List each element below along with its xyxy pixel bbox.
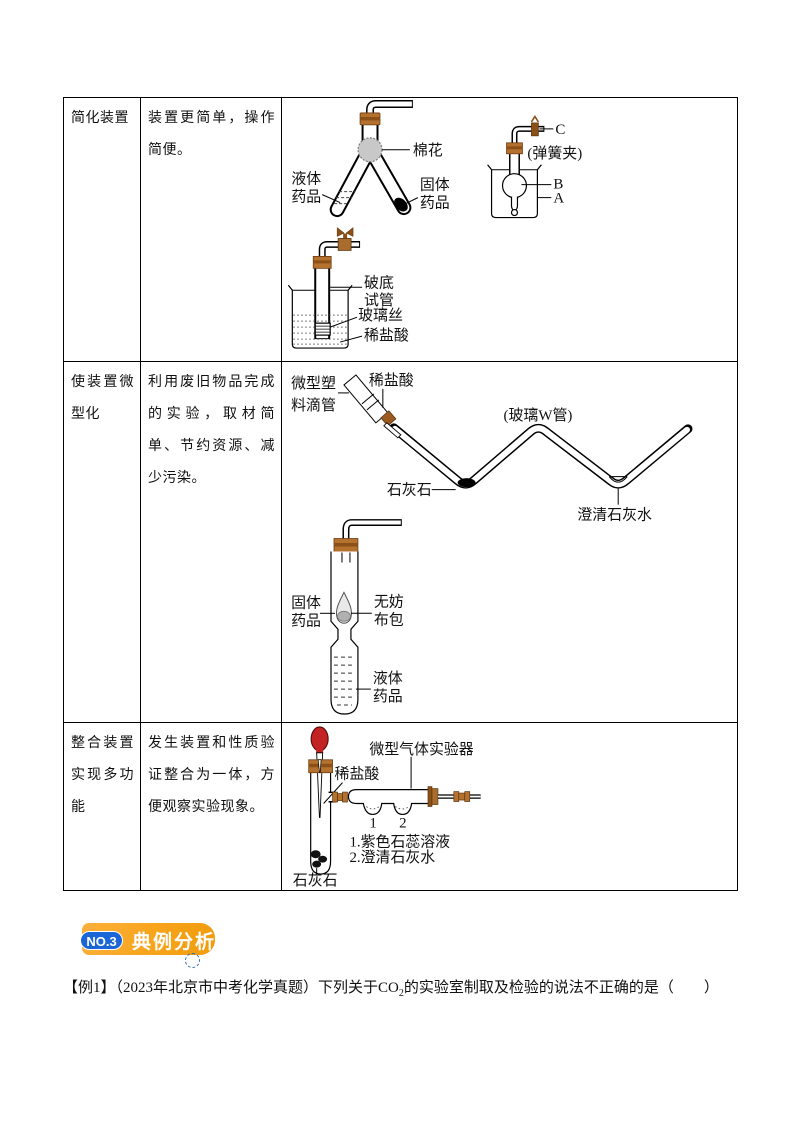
cotton-label: 棉花	[413, 142, 443, 159]
example-question: 【例1】（2023年北京市中考化学真题）下列关于CO2的实验室制取及检验的说法不…	[63, 977, 753, 1005]
micro-dropper-label: 微型塑	[291, 375, 336, 392]
solid-in-bag	[337, 611, 350, 621]
example-tag: 【例1】	[63, 980, 116, 996]
w-tube-label: (玻璃W管)	[504, 407, 573, 424]
label-c: C	[555, 122, 565, 138]
row2-diagrams: 微型塑 料滴管 稀盐酸 (玻璃W管) 石灰石 澄清石灰水	[282, 362, 737, 722]
row3-description: 发生装置和性质验证整合为一体，方便观察实验现象。	[141, 723, 281, 824]
row3-diagram: 稀盐酸 微型气体实验器 1	[282, 723, 737, 890]
stopcock-body	[338, 238, 351, 250]
well-1-number: 1	[369, 815, 376, 831]
svg-text:药品: 药品	[291, 189, 321, 206]
broken-tube-label: 破底	[364, 274, 394, 291]
svg-text:药品: 药品	[291, 612, 321, 629]
row1-description: 装置更简单，操作简便。	[141, 98, 281, 167]
cloth-bag-label: 无妨	[374, 593, 404, 610]
spring-clip-label: (弹簧夹)	[527, 145, 582, 162]
tube-connector	[333, 792, 338, 802]
acid-label: 稀盐酸	[369, 372, 414, 389]
solid-reagent-label: 固体	[291, 594, 321, 611]
liquid-reagent-label: 液体	[373, 670, 403, 687]
liquid-reagent-label: 液体	[291, 171, 321, 188]
bag-tube-diagram: 固体 药品 无妨 布包 液体 药品	[291, 523, 404, 714]
svg-text:布包: 布包	[374, 611, 404, 628]
row3-feature: 整合装置实现多功能	[64, 723, 140, 824]
acid-label: 稀盐酸	[364, 327, 409, 344]
svg-text:药品: 药品	[373, 688, 403, 705]
limestone-chunks	[311, 850, 321, 858]
micro-device-label: 微型气体实验器	[369, 741, 473, 758]
svg-text:药品: 药品	[420, 195, 450, 212]
section-number-badge: NO.3	[80, 931, 123, 950]
well-2-number: 2	[399, 815, 406, 831]
dashed-circle-decoration	[185, 953, 200, 968]
stopcock-beaker-diagram: 破底 试管 玻璃丝 稀盐酸	[288, 228, 409, 349]
svg-text:料滴管: 料滴管	[291, 396, 336, 414]
micro-gas-device-diagram: 稀盐酸 微型气体实验器 1	[293, 727, 481, 889]
table-row: 使装置微型化 利用废旧物品完成的实验，取材简单、节约资源、减少污染。 微型塑 料…	[64, 362, 738, 723]
row2-feature: 使装置微型化	[64, 362, 140, 431]
note-limewater: 2.澄清石灰水	[349, 849, 435, 866]
note-litmus: 1.紫色石蕊溶液	[349, 833, 450, 850]
spring-clip	[531, 123, 538, 136]
cotton-plug	[358, 138, 382, 162]
section-header: NO.3 典例分析	[80, 922, 300, 972]
section-title: 典例分析	[132, 927, 216, 954]
label-a: A	[553, 191, 564, 207]
glass-wool-label: 玻璃丝	[358, 307, 403, 324]
table-row: 简化装置 装置更简单，操作简便。	[64, 98, 738, 362]
solid-reagent-label: 固体	[420, 177, 450, 194]
limestone-label: 石灰石	[387, 482, 432, 499]
limewater-label: 澄清石灰水	[577, 507, 652, 524]
row1-feature: 简化装置	[64, 98, 140, 135]
row2-description: 利用废旧物品完成的实验，取材简单、节约资源、减少污染。	[141, 362, 281, 495]
row1-diagrams: 棉花 液体 药品 固体 药品	[282, 98, 737, 361]
y-tube-diagram: 棉花 液体 药品 固体 药品	[291, 104, 449, 214]
table-row: 整合装置实现多功能 发生装置和性质验证整合为一体，方便观察实验现象。	[64, 723, 738, 891]
svg-text:试管: 试管	[364, 292, 394, 309]
limestone-blob	[458, 478, 476, 487]
bulb-beaker-diagram: C (弹簧夹) B A	[488, 116, 583, 217]
limestone-label: 石灰石	[293, 872, 338, 889]
tube-connector	[454, 792, 459, 802]
apparatus-improvement-table: 简化装置 装置更简单，操作简便。	[63, 97, 738, 891]
acid-label: 稀盐酸	[335, 766, 380, 783]
end-cap	[428, 787, 432, 807]
w-tube-diagram: 微型塑 料滴管 稀盐酸 (玻璃W管) 石灰石 澄清石灰水	[291, 372, 688, 524]
